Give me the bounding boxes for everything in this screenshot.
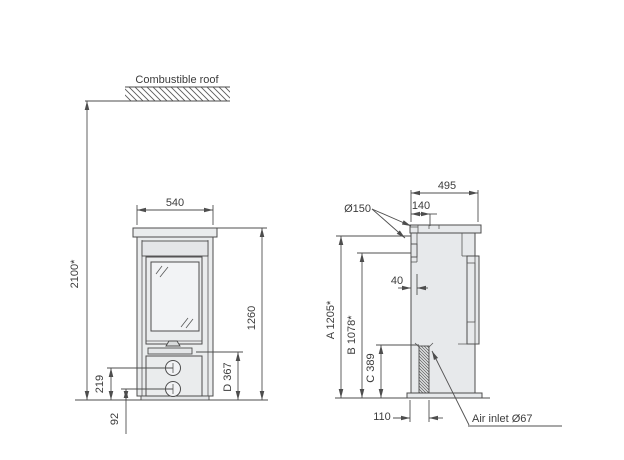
door-handle [166, 341, 180, 346]
dim-lower-connection-label: 92 [109, 413, 121, 425]
combustible-roof: Combustible roof [85, 74, 230, 101]
dim-d-label: D 367 [222, 362, 234, 391]
top-plate-front [133, 228, 217, 237]
dim-height-label: 1260 [246, 306, 258, 330]
dim-flue-center: 140 [411, 200, 437, 226]
dim-depth-label: 495 [438, 180, 456, 192]
air-inlet-pipe [419, 346, 429, 393]
roof-label: Combustible roof [135, 74, 219, 86]
side-view: 495 140 Ø150 40 A 1205* [325, 180, 562, 426]
air-inlet-label: Air inlet Ø67 [472, 413, 533, 425]
ash-lip [148, 348, 192, 354]
rear-flue-outlet [411, 244, 417, 257]
dim-width-label: 540 [166, 197, 184, 209]
stove-dimension-drawing: Combustible roof [0, 0, 624, 460]
dim-floor-to-ceiling: 2100* [69, 101, 87, 400]
stove-front [133, 228, 217, 400]
stove-side [407, 225, 482, 398]
dim-b-label: B 1078* [346, 315, 358, 355]
flue-diameter-callout: Ø150 [344, 203, 411, 238]
base-plate-side [407, 393, 482, 398]
roof-hatch [125, 87, 230, 101]
dim-air-inlet-offset: 110 [373, 400, 443, 423]
dim-upper-connection-label: 219 [94, 375, 106, 393]
top-band [142, 241, 208, 256]
dim-air-inlet-offset-label: 110 [373, 411, 391, 423]
dim-a-label: A 1205* [325, 300, 337, 339]
door-profile [467, 256, 479, 344]
dim-c-label: C 389 [365, 353, 377, 382]
top-plate-side [410, 225, 481, 233]
dim-width: 540 [137, 197, 213, 225]
drawing-svg: Combustible roof [0, 0, 624, 460]
flue-diameter-label: Ø150 [344, 203, 371, 215]
front-view: Combustible roof [69, 74, 268, 434]
dim-flue-center-label: 140 [412, 200, 430, 212]
dim-back-offset-label: 40 [391, 275, 403, 287]
dim-floor-to-ceiling-label: 2100* [69, 259, 81, 288]
